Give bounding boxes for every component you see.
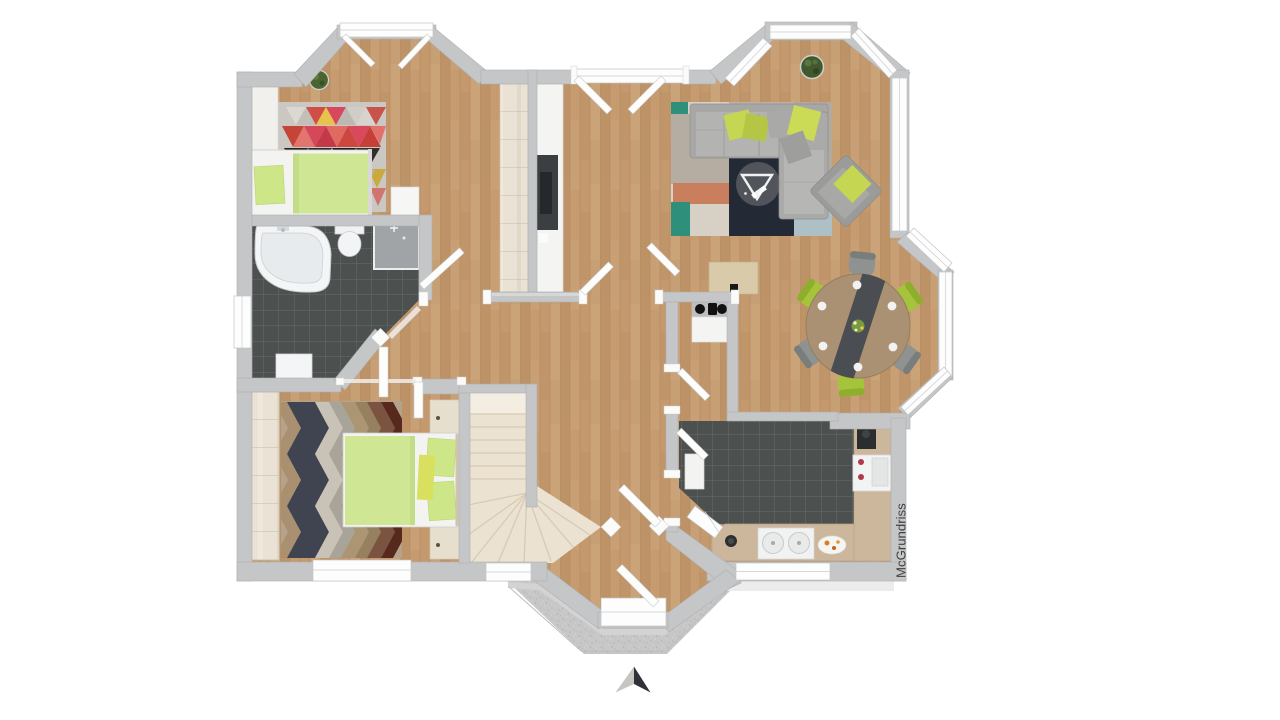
svg-text:McGrundriss: McGrundriss [894,503,909,578]
